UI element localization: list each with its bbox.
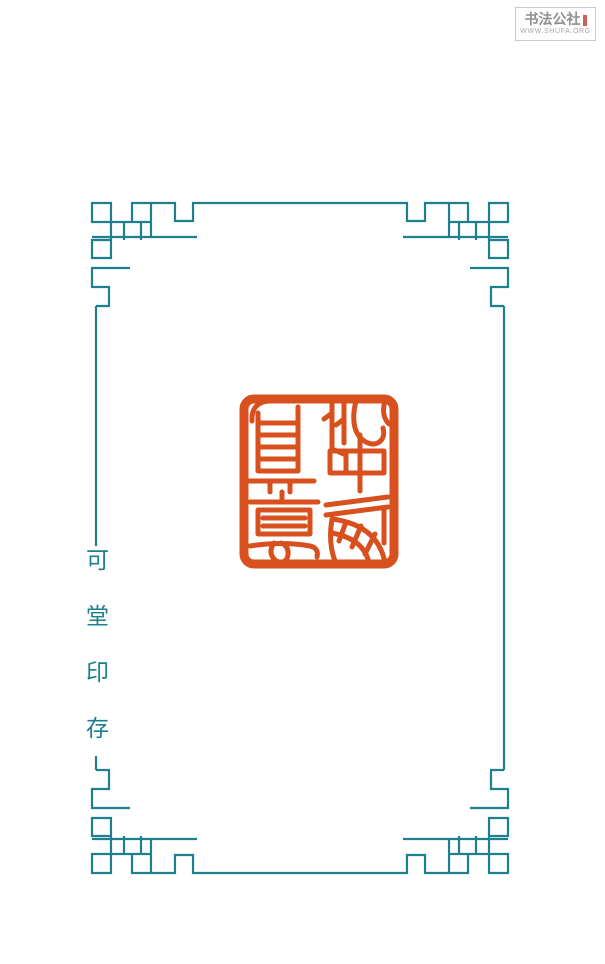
title-vertical: 可 堂 印 存 <box>84 550 111 741</box>
watermark-site-name: 书法公社 <box>525 13 581 27</box>
frame-corner-bottom-right <box>300 770 508 873</box>
seal-char-yi <box>250 492 318 562</box>
page: { "page": { "background_color": "#ffffff… <box>0 0 605 964</box>
title-char: 堂 <box>86 606 109 629</box>
watermark-seal-icon <box>583 15 587 26</box>
seal-impression: 此中有真意 <box>238 393 400 570</box>
frame-corner-top-right <box>300 203 508 306</box>
watermark-site-url: WWW.SHUFA.ORG <box>520 28 590 35</box>
watermark-badge: 书法公社 WWW.SHUFA.ORG <box>515 7 596 41</box>
seal-char-you <box>326 497 388 563</box>
title-char: 存 <box>86 718 109 741</box>
seal-char-ci <box>324 401 389 455</box>
watermark-title-row: 书法公社 <box>525 13 587 27</box>
seal-char-zhen <box>248 401 314 492</box>
title-char: 可 <box>86 550 109 573</box>
title-char: 印 <box>86 662 109 685</box>
frame-corner-top-left <box>92 203 300 306</box>
frame-corner-bottom-left <box>92 770 300 873</box>
